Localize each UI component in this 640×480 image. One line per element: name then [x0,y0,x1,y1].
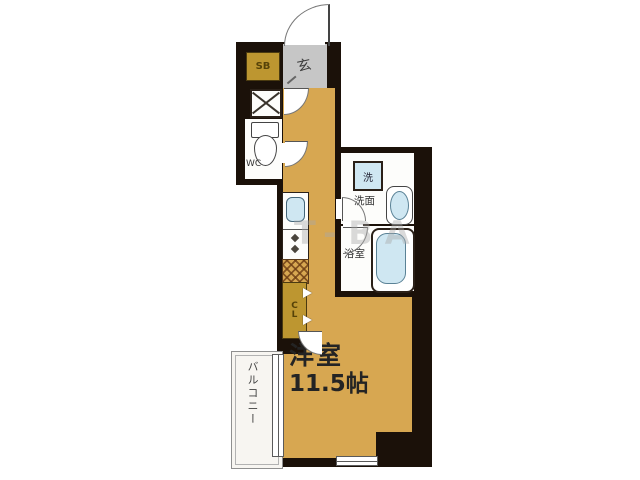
wc-label: WC [246,159,261,169]
shaft-x-icon [250,89,282,118]
washing-machine-space: 洗 [353,161,383,191]
shoe-box-label: SB [256,61,271,72]
closet-label: CL [291,302,299,320]
entrance-door-arc [284,4,330,46]
washer-label: 洗 [363,169,373,184]
wall-pillar [376,432,414,460]
watermark-text: T-BA [294,214,422,252]
south-window [336,456,378,466]
balcony-window [272,354,284,457]
floor-plan: SB WC CL 洗 洗面 浴室 玄 洋室 11.5帖 バルコニー [0,0,640,480]
refrigerator-space [282,259,309,284]
closet-door-marker-icon [303,288,312,298]
shoe-box: SB [246,52,280,81]
room-size: 11.5帖 [289,371,419,398]
closet-door-marker-icon [303,315,312,325]
balcony-label: バルコニー [244,361,260,426]
